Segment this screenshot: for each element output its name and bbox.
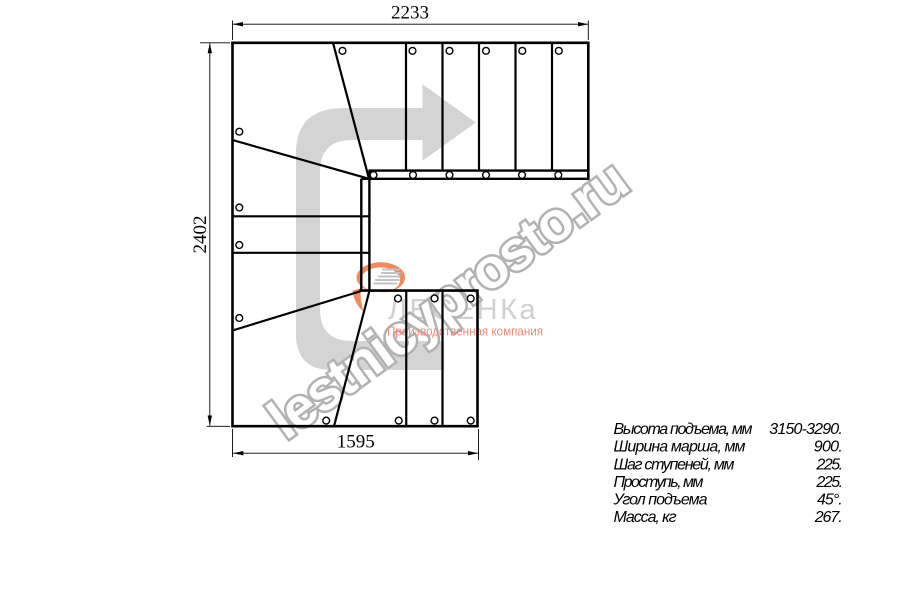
- svg-text:1595: 1595: [337, 432, 375, 453]
- svg-text:45°.: 45°.: [817, 491, 843, 508]
- svg-text:2402: 2402: [190, 216, 211, 254]
- svg-text:Высота подъема, мм: Высота подъема, мм: [614, 421, 753, 438]
- svg-text:225.: 225.: [815, 474, 843, 491]
- svg-text:Производственная компания: Производственная компания: [387, 325, 543, 339]
- svg-text:267.: 267.: [814, 509, 843, 526]
- svg-text:Ширина марша, мм: Ширина марша, мм: [614, 439, 746, 456]
- svg-text:Шаг ступеней, мм: Шаг ступеней, мм: [614, 457, 735, 474]
- svg-text:Масса, кг: Масса, кг: [614, 509, 677, 526]
- svg-text:900.: 900.: [814, 439, 843, 456]
- svg-text:Проступь, мм: Проступь, мм: [614, 474, 704, 491]
- svg-text:2233: 2233: [391, 3, 429, 24]
- svg-text:3150-3290.: 3150-3290.: [769, 421, 843, 438]
- svg-text:225.: 225.: [815, 457, 843, 474]
- svg-text:Угол подъема: Угол подъема: [613, 491, 708, 508]
